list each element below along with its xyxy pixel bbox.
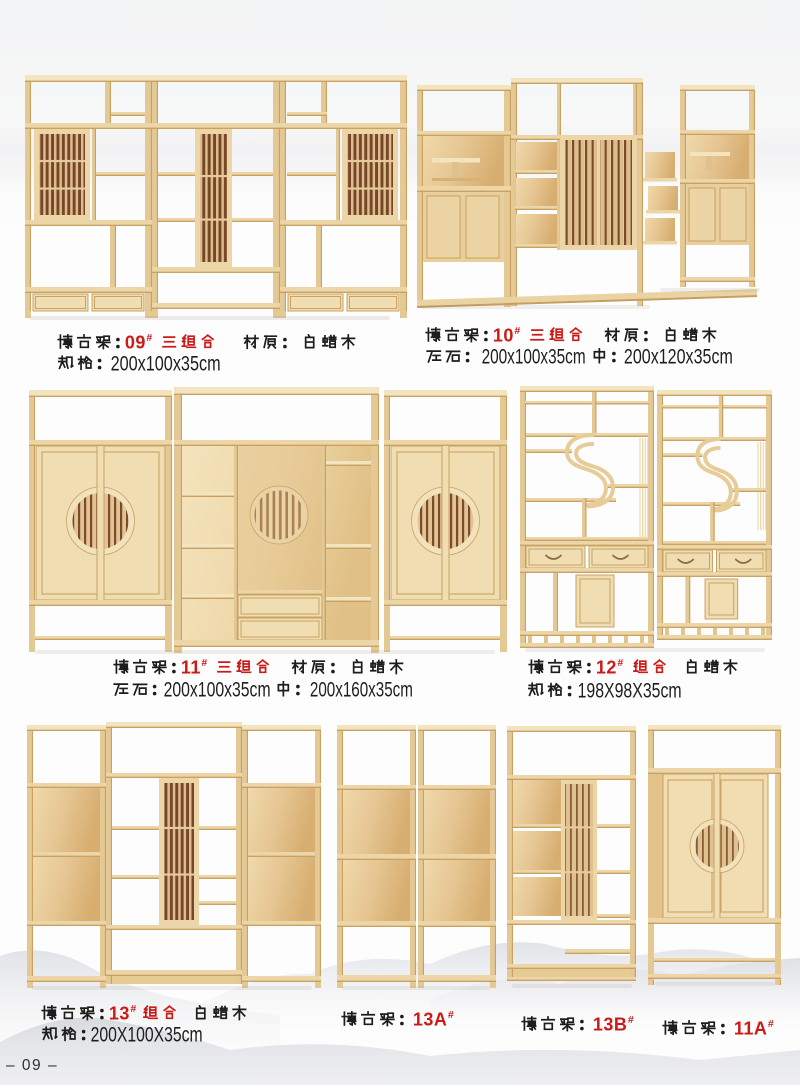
svg-text:198X98X35cm: 198X98X35cm	[578, 679, 682, 702]
svg-text:200X100X35cm: 200X100X35cm	[91, 1023, 203, 1046]
svg-text:11: 11	[181, 658, 201, 678]
svg-text:#: #	[130, 1003, 136, 1015]
svg-text:11A: 11A	[734, 1019, 768, 1039]
svg-text:– 09 –: – 09 –	[6, 1057, 58, 1074]
svg-text:200x100x35cm: 200x100x35cm	[111, 352, 221, 375]
svg-text:12: 12	[596, 658, 617, 678]
svg-text:#: #	[617, 657, 623, 669]
svg-text:200x100x35cm: 200x100x35cm	[164, 678, 271, 701]
svg-text:09: 09	[125, 333, 146, 353]
svg-text:13A: 13A	[413, 1010, 448, 1030]
svg-text:10: 10	[493, 326, 514, 346]
svg-text:#: #	[514, 325, 520, 337]
svg-text:#: #	[768, 1018, 774, 1030]
svg-text:#: #	[146, 332, 152, 344]
svg-text:200x120x35cm: 200x120x35cm	[624, 345, 733, 368]
svg-text:200x100x35cm: 200x100x35cm	[482, 345, 586, 368]
svg-text:13: 13	[109, 1004, 130, 1024]
svg-text:200x160x35cm: 200x160x35cm	[310, 678, 413, 701]
svg-text:#: #	[201, 657, 207, 669]
svg-text:13B: 13B	[593, 1015, 628, 1035]
svg-text:#: #	[628, 1014, 634, 1026]
svg-text:#: #	[448, 1009, 454, 1021]
